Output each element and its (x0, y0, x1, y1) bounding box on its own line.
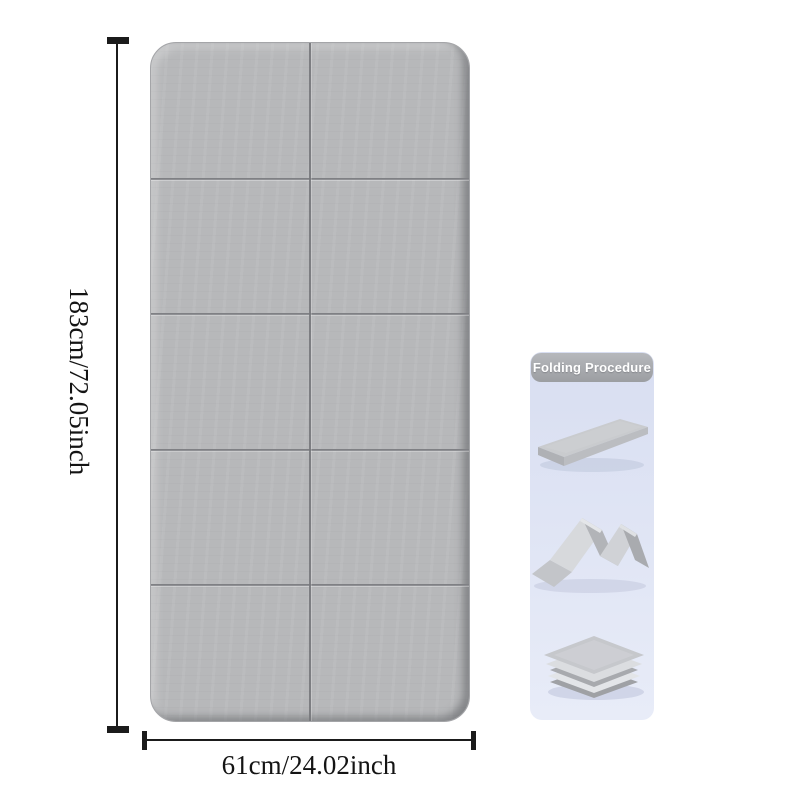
folding-procedure-title: Folding Procedure (531, 353, 653, 382)
flat-mat-icon (530, 399, 654, 485)
accordion-fold-icon (530, 502, 654, 598)
height-dimension-cap-top (107, 37, 129, 44)
folded-stack-icon (530, 610, 654, 706)
mat (150, 42, 470, 722)
height-dimension-line (116, 42, 118, 730)
width-dimension-cap-right (471, 731, 476, 750)
folding-step-1 (530, 392, 654, 492)
folding-steps (530, 382, 654, 720)
folding-procedure-panel: Folding Procedure (530, 352, 654, 720)
mat-vertical-fold-line (309, 43, 311, 721)
height-dimension-label: 183cm/72.05inch (59, 42, 97, 720)
product-image: 183cm/72.05inch 61cm/24.02inch Folding P… (0, 0, 800, 800)
height-dimension-cap-bottom (107, 726, 129, 733)
width-dimension-cap-left (142, 731, 147, 750)
width-dimension-label: 61cm/24.02inch (150, 751, 468, 781)
folding-step-3 (530, 608, 654, 708)
width-dimension-line (144, 739, 474, 741)
folding-step-2 (530, 500, 654, 600)
